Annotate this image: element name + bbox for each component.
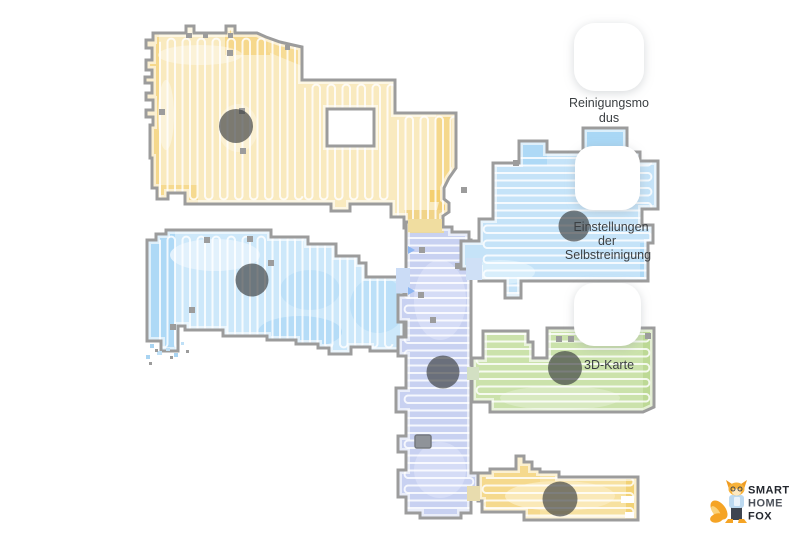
svg-text:SMART: SMART <box>748 485 790 497</box>
svg-text:3D-Karte: 3D-Karte <box>584 358 634 372</box>
svg-text:Reinigungsmo: Reinigungsmo <box>569 96 649 110</box>
svg-text:HOME: HOME <box>748 498 783 510</box>
svg-text:der: der <box>598 234 616 248</box>
svg-text:dus: dus <box>599 111 619 125</box>
svg-text:Einstellungen: Einstellungen <box>573 220 648 234</box>
svg-text:FOX: FOX <box>748 511 772 523</box>
svg-text:Selbstreinigung: Selbstreinigung <box>565 248 651 262</box>
